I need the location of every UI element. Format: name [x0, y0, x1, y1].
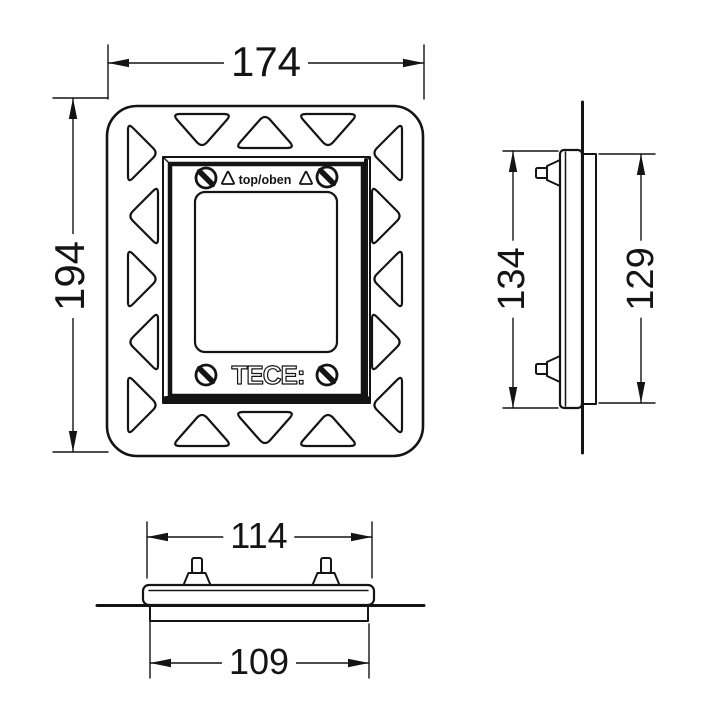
dimension-value-width: 174	[224, 41, 308, 83]
cutout-triangle	[175, 114, 229, 145]
cutout-triangle	[301, 114, 355, 145]
cutout-triangle	[175, 415, 229, 446]
arrowhead	[150, 659, 171, 667]
cutout-triangle	[130, 315, 158, 369]
corner-bevel	[163, 157, 170, 164]
arrowhead	[69, 431, 77, 452]
front-view: top/oben TECE:	[107, 106, 423, 456]
pin-stem	[536, 168, 547, 178]
arrowhead	[403, 59, 424, 67]
dimension-value-side-outer: 134	[493, 240, 531, 317]
cutout-triangle	[374, 252, 402, 306]
screw-icon	[317, 365, 337, 385]
cutout-triangle	[372, 189, 400, 243]
mounting-pin-bottom	[184, 558, 211, 585]
pin-base	[547, 356, 560, 382]
arrowhead	[637, 382, 645, 403]
cutout-triangle	[238, 117, 292, 148]
pin-base	[313, 573, 340, 585]
cutout-triangle	[128, 378, 156, 432]
arrowhead	[108, 59, 129, 67]
drawing-linework: top/oben TECE:	[0, 0, 714, 714]
technical-drawing-page: top/oben TECE:	[0, 0, 714, 714]
up-triangle-icon	[222, 172, 234, 184]
bottom-view	[97, 558, 424, 621]
screw-icon	[196, 168, 216, 188]
back-box-bottom	[150, 605, 368, 621]
arrowhead	[637, 154, 645, 175]
dimension-value-side-inner: 129	[622, 240, 660, 317]
screw-icon	[317, 167, 337, 187]
arrowhead	[351, 533, 372, 541]
cutout-triangle	[130, 189, 158, 243]
dimension-value-height: 194	[49, 234, 91, 318]
pin-stem	[192, 558, 202, 573]
up-triangle-icon	[300, 172, 312, 184]
frame-plate-bottom	[143, 585, 374, 605]
orientation-label: top/oben	[239, 173, 292, 187]
cutout-triangle	[128, 126, 156, 180]
dimension-value-bottom-inner: 109	[222, 644, 296, 680]
cutout-triangle	[238, 412, 292, 443]
pin-stem	[321, 558, 331, 573]
cutout-triangle	[301, 415, 355, 446]
mounting-pin-bottom	[313, 558, 340, 585]
mounting-pin-profile	[536, 160, 560, 186]
screw-icon	[196, 365, 216, 385]
mounting-pin-profile	[536, 356, 560, 382]
cutout-triangle	[374, 378, 402, 432]
pin-stem	[536, 364, 547, 374]
arrowhead	[69, 98, 77, 119]
pin-base	[547, 160, 560, 186]
side-view	[536, 102, 596, 453]
dimension-value-bottom-outer: 114	[223, 518, 294, 554]
arrowhead	[509, 151, 517, 172]
arrowhead	[348, 659, 369, 667]
pin-base	[184, 573, 211, 585]
cutout-triangle	[128, 252, 156, 306]
arrowhead	[147, 533, 168, 541]
arrowhead	[509, 387, 517, 408]
cutout-triangle	[374, 126, 402, 180]
brand-logo: TECE:	[232, 360, 305, 390]
back-box-profile	[582, 154, 596, 404]
frame-plate-profile	[560, 150, 582, 408]
button-recess-outline	[195, 192, 337, 352]
cutout-triangle	[372, 315, 400, 369]
